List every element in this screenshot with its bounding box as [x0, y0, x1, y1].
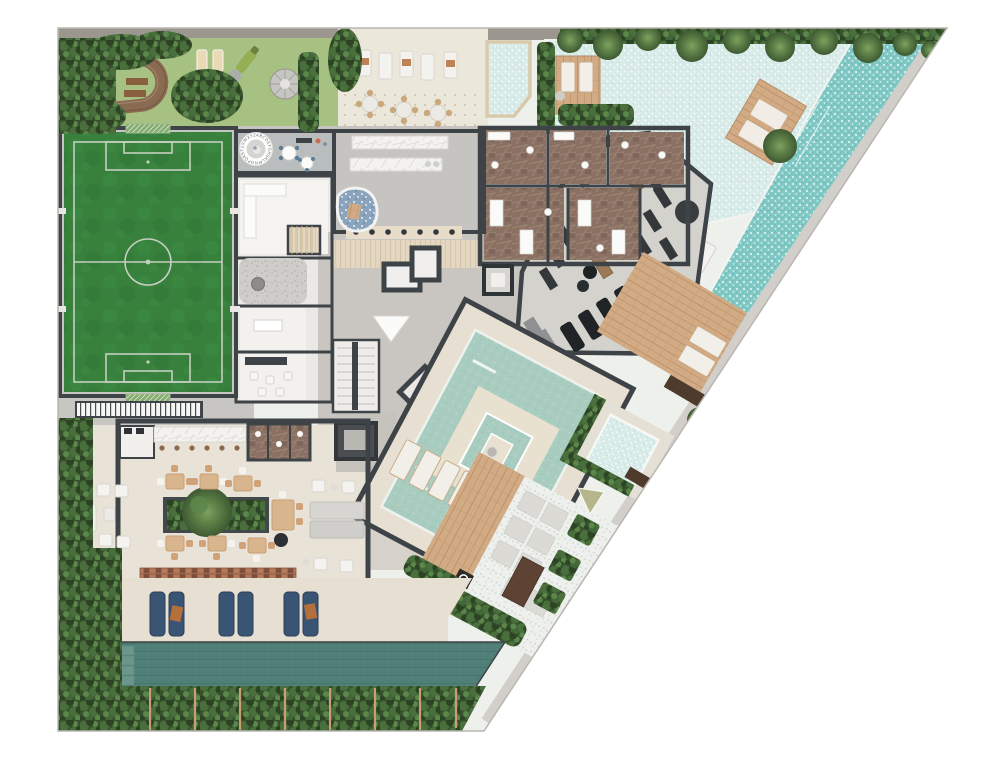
planter-tree: [182, 487, 232, 537]
elevator: [412, 248, 439, 280]
plunge-pool: [487, 42, 530, 116]
deck-lounger: [561, 62, 575, 92]
site-plan: ABCDEFGHIJKLMNOPQRSTUVWXYZ: [0, 0, 997, 768]
sauna-bench: [491, 273, 505, 287]
south-deck-loungers: [150, 592, 318, 636]
wood-staircase: [288, 226, 320, 254]
terrazzo-patio: [239, 258, 307, 304]
floor-plan-canvas: ABCDEFGHIJKLMNOPQRSTUVWXYZ: [0, 0, 997, 768]
weight-plate-stack: [577, 280, 589, 292]
hedge-strip: [558, 104, 634, 126]
armchair: [99, 534, 112, 546]
kids-table: [282, 146, 296, 160]
deck-side-table: [555, 91, 565, 101]
grill: [274, 533, 288, 547]
kids-lounger: [197, 50, 207, 71]
soccer-field: [56, 124, 240, 417]
bleacher: [76, 402, 202, 417]
kitchen-counter: [154, 427, 246, 442]
goal-north: [126, 124, 170, 133]
hedge-strip: [537, 42, 555, 134]
armchair: [117, 536, 130, 548]
media-console: [245, 357, 287, 365]
kids-lounger: [213, 50, 223, 71]
pool-palm: [687, 407, 713, 433]
park-bench: [124, 90, 146, 97]
toy-shelf: [296, 138, 312, 143]
spiral-structure: [270, 69, 300, 99]
patio-stool: [252, 278, 265, 291]
deck-lounger: [579, 62, 593, 92]
south-lap-pool: [118, 642, 505, 688]
armchair: [340, 560, 353, 572]
side-table: [104, 508, 115, 521]
bar-counter: [352, 136, 448, 149]
south-hedge-band: [112, 686, 486, 731]
armchair: [115, 485, 128, 497]
island-palm-tree: [763, 129, 797, 163]
terrace-lounge: [344, 50, 476, 136]
armchair: [314, 558, 327, 570]
park-bench: [126, 78, 148, 85]
massage-table: [254, 320, 282, 331]
armchair: [312, 480, 325, 492]
armchair: [97, 484, 110, 496]
armchair: [342, 481, 355, 493]
weight-plate-stack: [583, 265, 597, 279]
